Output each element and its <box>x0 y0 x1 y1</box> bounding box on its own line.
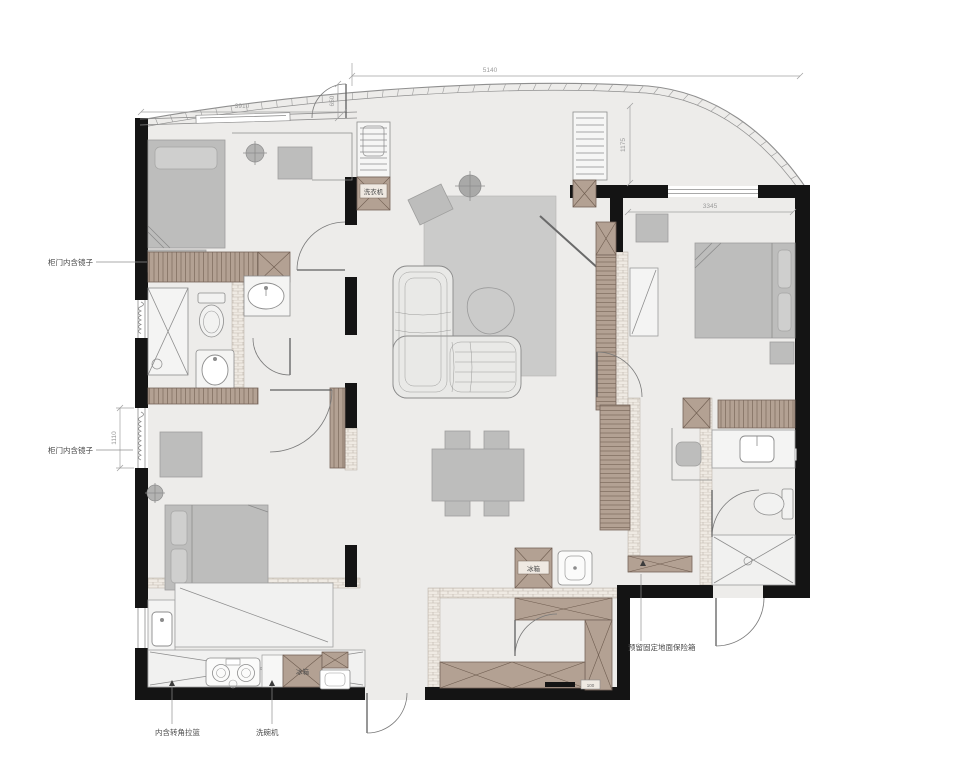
floor-plan-canvas: 冰箱 <box>0 0 972 782</box>
washbasin-niche <box>244 276 290 316</box>
door-bottom-right <box>716 598 764 646</box>
vanity <box>712 430 795 468</box>
dim-5140: 5140 <box>483 67 498 74</box>
wardrobe <box>683 398 795 428</box>
dim-650: 650 <box>329 95 336 106</box>
dim-top-width: 5140 <box>349 63 803 86</box>
bed <box>695 243 795 338</box>
kitchen-sink <box>152 612 172 646</box>
dim-3910: 3910 <box>235 103 250 110</box>
corridor-wardrobe <box>600 405 630 530</box>
desk <box>630 268 658 336</box>
floor-plan-page: 冰箱 <box>0 0 972 782</box>
tall-cabinet <box>357 122 390 177</box>
floor-safe-label: 预留固定地面保险箱 <box>628 642 696 652</box>
dim-1110: 1110 <box>111 431 118 445</box>
shower-area <box>712 535 795 585</box>
shower <box>148 288 188 375</box>
callout-mirror-top: 柜门内含镜子 <box>48 257 147 267</box>
bathroom-right <box>712 430 795 646</box>
mirror-cabinet-bottom-label: 柜门内含镜子 <box>48 445 93 455</box>
scale-note: 100 <box>587 683 595 688</box>
fridge-hall-label: 冰箱 <box>527 564 541 573</box>
dishwasher-label: 洗碗机 <box>256 727 279 737</box>
desk <box>160 432 202 477</box>
stool <box>676 442 701 466</box>
window-left-2 <box>135 408 148 468</box>
fridge-kitchen: 冰箱 <box>283 655 322 687</box>
washing-machine: 洗衣机 <box>357 177 390 210</box>
living-wall-cabinet <box>596 222 616 410</box>
dim-3345: 3345 <box>703 203 718 210</box>
window-left-1 <box>135 300 148 338</box>
dim-1175: 1175 <box>620 138 627 152</box>
fridge-hall: 冰箱 <box>515 548 552 588</box>
window-left-3 <box>135 608 148 648</box>
island-counter <box>175 583 333 647</box>
fridge-kitchen-label: 冰箱 <box>296 667 310 676</box>
toilet <box>198 293 225 337</box>
washing-machine-label: 洗衣机 <box>364 187 384 196</box>
stove <box>206 658 260 688</box>
corner-basket-label: 内含转角拉篮 <box>155 727 200 737</box>
mirror-cabinet-top-label: 柜门内含镜子 <box>48 257 93 267</box>
water-heater <box>558 551 592 585</box>
nightstand <box>636 214 668 242</box>
cabinet-small <box>320 652 350 689</box>
nightstand <box>770 342 794 364</box>
window-top-right <box>668 186 758 197</box>
dim-left-window: 1110 <box>111 405 134 471</box>
floor-safe-closet <box>628 556 692 572</box>
washbasin-2 <box>196 350 234 390</box>
bed <box>165 505 268 590</box>
dining-table <box>432 449 524 501</box>
